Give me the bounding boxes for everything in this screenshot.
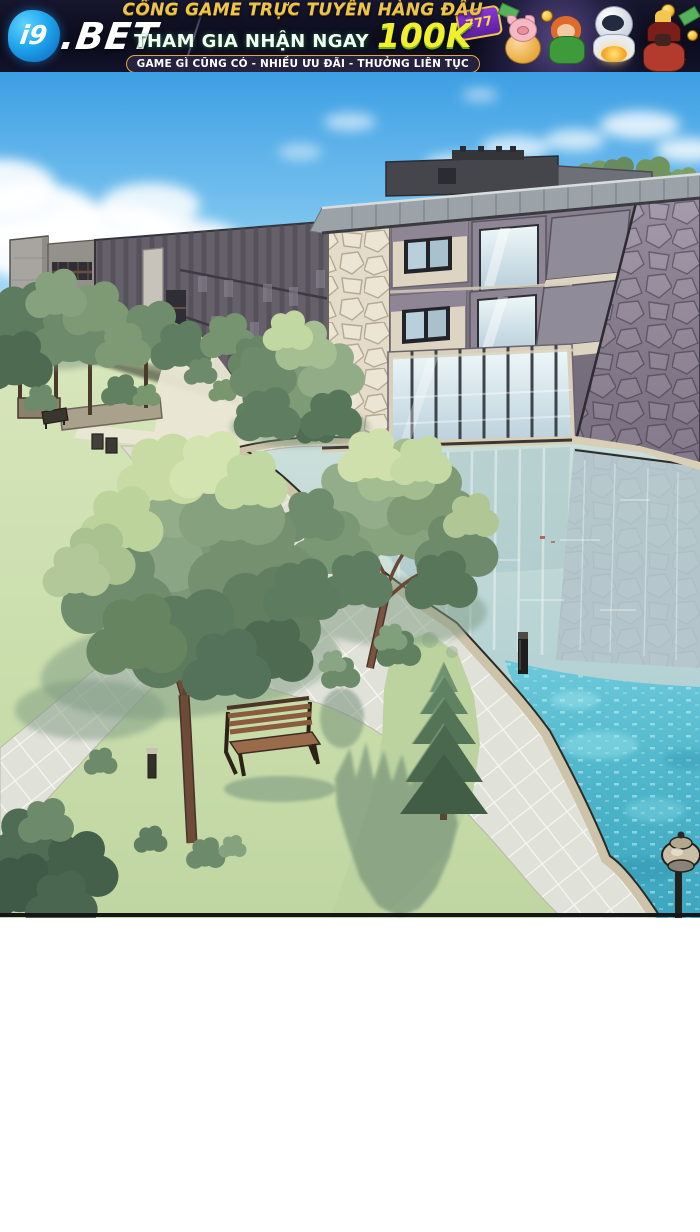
light-bollard-left xyxy=(146,748,158,778)
leprechaun-character xyxy=(551,16,581,42)
panel-border xyxy=(0,913,700,917)
banknote-icon xyxy=(678,6,700,26)
logo-blob-icon: i9 xyxy=(8,10,60,62)
logo-prefix: i9 xyxy=(18,21,49,51)
samurai-character xyxy=(647,20,681,42)
banner-subline: THAM GIA NHẬN NGAY xyxy=(134,31,369,52)
coin-icon xyxy=(687,30,698,41)
banner-tagline-pill: GAME GÌ CŨNG CÓ - NHIỀU ƯU ĐÃI - THƯỞNG … xyxy=(126,55,480,73)
page-whitespace xyxy=(0,918,700,1232)
banner-artwork: 777 xyxy=(455,0,700,72)
astronaut-character xyxy=(595,6,633,42)
campus-illustration xyxy=(0,72,700,918)
gold-pig-character xyxy=(505,32,541,64)
light-bollard-pool xyxy=(518,632,528,674)
banner-bonus-amount: 100K xyxy=(377,21,471,51)
banner-text-block: CỔNG GAME TRỰC TUYẾN HÀNG ĐẦU THAM GIA N… xyxy=(172,0,434,72)
ad-banner[interactable]: i9 .BET CỔNG GAME TRỰC TUYẾN HÀNG ĐẦU TH… xyxy=(0,0,700,72)
building-main xyxy=(310,174,700,466)
